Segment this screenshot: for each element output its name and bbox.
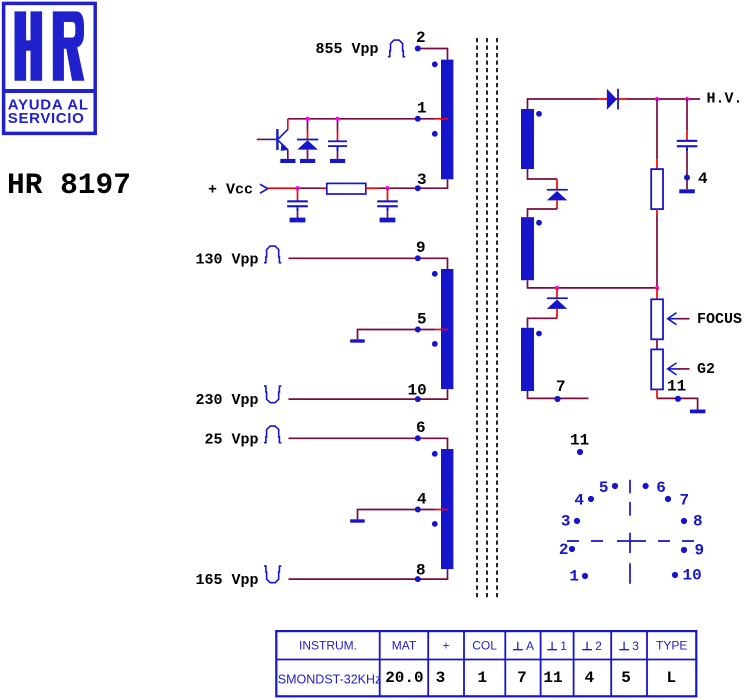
svg-text:7: 7 — [556, 378, 566, 396]
svg-text:2: 2 — [559, 541, 569, 559]
svg-text:1: 1 — [477, 669, 487, 687]
svg-text:11: 11 — [570, 431, 589, 449]
svg-text:4: 4 — [698, 170, 708, 188]
svg-text:2: 2 — [595, 639, 602, 653]
svg-text:130 Vpp: 130 Vpp — [195, 251, 258, 268]
svg-text:3: 3 — [632, 639, 639, 653]
svg-text:6: 6 — [656, 479, 666, 497]
svg-text:1: 1 — [417, 99, 427, 117]
svg-text:+: + — [442, 639, 449, 653]
svg-text:SERVICIO: SERVICIO — [8, 110, 85, 127]
svg-text:3: 3 — [561, 513, 571, 531]
svg-text:G2: G2 — [697, 361, 715, 378]
svg-text:2: 2 — [416, 29, 426, 47]
svg-text:3: 3 — [417, 171, 427, 189]
svg-text:20.0: 20.0 — [385, 669, 423, 687]
svg-text:11: 11 — [667, 378, 686, 396]
svg-text:FOCUS: FOCUS — [697, 311, 742, 328]
svg-text:HR 8197: HR 8197 — [7, 168, 131, 202]
svg-text:6: 6 — [416, 419, 426, 437]
svg-text:9: 9 — [416, 239, 426, 257]
svg-text:4: 4 — [417, 491, 427, 509]
svg-text:9: 9 — [695, 542, 705, 560]
svg-text:5: 5 — [621, 669, 631, 687]
svg-text:5: 5 — [599, 479, 609, 497]
svg-text:3: 3 — [436, 669, 446, 687]
svg-text:165 Vpp: 165 Vpp — [195, 572, 258, 589]
svg-text:10: 10 — [408, 381, 427, 399]
svg-text:L: L — [666, 669, 676, 687]
svg-text:H.V.: H.V. — [707, 91, 743, 108]
svg-text:SMONDST-32KHz: SMONDST-32KHz — [278, 672, 382, 686]
svg-text:MAT: MAT — [392, 639, 417, 653]
svg-text:8: 8 — [416, 561, 426, 579]
svg-text:COL: COL — [472, 639, 497, 653]
svg-text:TYPE: TYPE — [656, 639, 687, 653]
svg-text:4: 4 — [574, 491, 584, 509]
svg-text:1: 1 — [560, 639, 567, 653]
svg-text:7: 7 — [517, 669, 527, 687]
svg-text:INSTRUM.: INSTRUM. — [299, 639, 357, 653]
svg-text:1: 1 — [569, 567, 579, 585]
svg-text:10: 10 — [683, 567, 702, 585]
svg-text:4: 4 — [584, 669, 594, 687]
svg-text:A: A — [526, 639, 534, 653]
svg-text:5: 5 — [417, 311, 427, 329]
svg-text:11: 11 — [543, 669, 562, 687]
svg-text:7: 7 — [680, 491, 690, 509]
svg-text:855 Vpp: 855 Vpp — [315, 41, 378, 58]
svg-text:230 Vpp: 230 Vpp — [195, 392, 258, 409]
svg-text:25 Vpp: 25 Vpp — [204, 431, 258, 448]
svg-text:8: 8 — [693, 513, 703, 531]
svg-text:+ Vcc: + Vcc — [208, 181, 253, 198]
